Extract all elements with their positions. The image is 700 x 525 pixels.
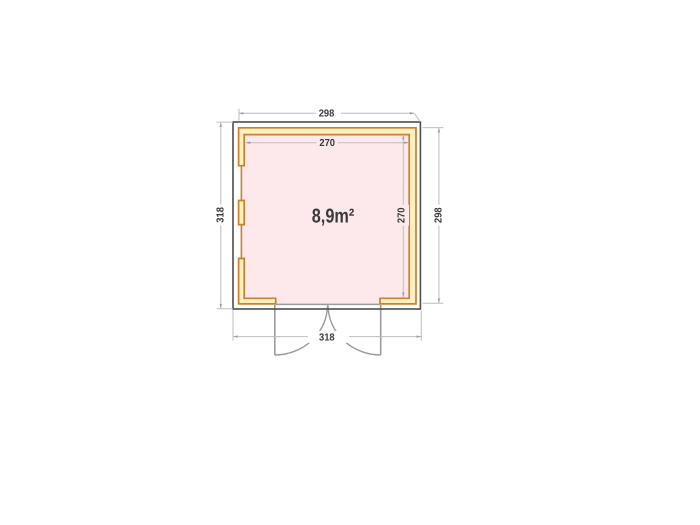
svg-text:8,9m²: 8,9m² — [312, 206, 355, 228]
svg-text:298: 298 — [319, 109, 335, 120]
svg-text:318: 318 — [319, 333, 335, 344]
svg-text:298: 298 — [434, 207, 445, 223]
svg-text:270: 270 — [396, 207, 407, 223]
svg-text:270: 270 — [319, 138, 335, 149]
svg-text:318: 318 — [216, 207, 227, 223]
